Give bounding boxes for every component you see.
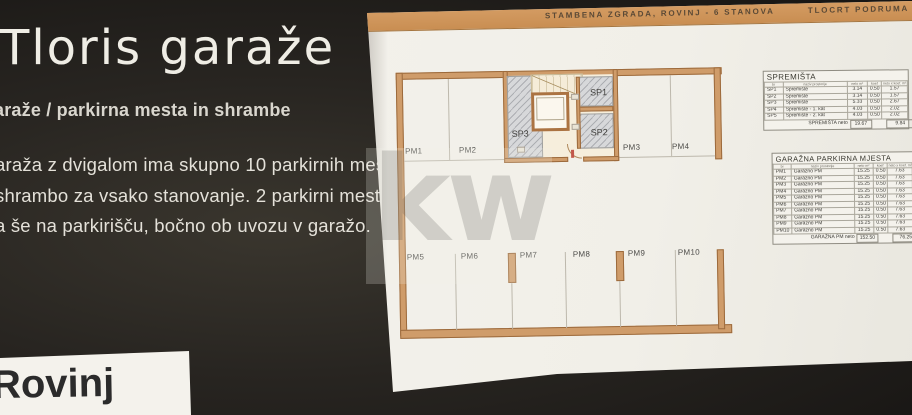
project-title: STAMBENA ZGRADA, ROVINJ - 6 STANOVA	[545, 7, 765, 20]
elevator-car	[536, 97, 564, 120]
divider-pm9-pm10	[675, 250, 677, 326]
location-label: Rovinj	[0, 361, 115, 408]
table-cell: 0.50	[868, 112, 882, 119]
divider-pm8-pm9	[619, 281, 621, 327]
table-cell: 0.50	[874, 227, 888, 234]
wall-sp1-sp2	[577, 106, 613, 112]
wall-right-upper	[714, 67, 723, 159]
label-pm3: PM3	[623, 143, 641, 152]
parking-table: GARAŽNA PARKIRNA MJESTA brnaziv prostori…	[772, 151, 912, 244]
divider-pm6-pm7	[511, 283, 513, 329]
label-pm4: PM4	[672, 142, 690, 151]
photo-of-presentation-board: Tloris garaže araže / parkirna mesta in …	[0, 0, 912, 415]
table-cell: 0.50	[874, 207, 888, 214]
parking-table-title: GARAŽNA PARKIRNA MJESTA	[773, 152, 912, 163]
description-paragraph: araža z dvigalom ima skupno 10 parkirnih…	[0, 150, 395, 242]
parking-table-total: GARAŽNA PM neto 152.50 76.25	[773, 233, 912, 243]
table-cell: 0.50	[874, 214, 888, 221]
total-neto: 152.50	[857, 234, 879, 243]
page-subtitle: araže / parkirna mesta in shrambe	[0, 100, 374, 121]
table-cell: 0.50	[874, 220, 888, 227]
storage-table-grid: brnaziv prostorijeneto m²koefneto x koef…	[764, 80, 908, 120]
kw-watermark-text: kw	[372, 126, 552, 274]
total-label: SPREMIŠTA neto	[764, 119, 850, 129]
table-cell: Spremište - 2. kat	[783, 112, 847, 119]
table-cell: 0.50	[873, 168, 887, 175]
label-pm8: PM8	[573, 250, 591, 259]
description-line-2: shrambo za vsako stanovanje. 2 parkirni …	[0, 181, 395, 212]
kw-watermark: kw	[366, 148, 552, 284]
table-cell: 0.50	[874, 194, 888, 201]
table-cell: 2.02	[882, 112, 908, 119]
wall-right-lower	[717, 249, 725, 329]
storage-table: SPREMIŠTA brnaziv prostorijeneto m²koefn…	[763, 69, 910, 130]
parking-table-grid: brnaziv prostorijeneto m²koefneto x koef…	[773, 162, 912, 234]
table-column-header: neto x koef. m²	[887, 163, 912, 168]
total-sum: 76.25	[892, 233, 912, 242]
topstalls-front-line-right	[619, 155, 715, 158]
description-line-1: araža z dvigalom ima skupno 10 parkirnih…	[0, 150, 395, 181]
table-cell: 0.50	[867, 93, 881, 100]
label-sp1: SP1	[590, 87, 607, 97]
table-cell: 7.63	[888, 226, 912, 233]
door-mark-sp1	[571, 94, 579, 100]
table-cell: 0.50	[874, 201, 888, 208]
core-wall-bottom-right	[583, 156, 619, 162]
table-cell: Garažno PM	[792, 227, 855, 234]
divider-pm7-pm8	[565, 252, 567, 328]
description-line-3: a še na parkirišču, bočno ob uvozu v gar…	[0, 211, 395, 242]
core-entry-door-leaf	[571, 150, 574, 158]
table-cell: 4.03	[848, 112, 868, 119]
drawing-header-bar: STAMBENA ZGRADA, ROVINJ - 6 STANOVA TLOC…	[362, 0, 912, 32]
total-gap	[872, 119, 886, 128]
table-cell: 0.50	[867, 99, 881, 106]
total-label: GARAŽNA PM neto	[773, 234, 856, 244]
label-pm10: PM10	[678, 248, 700, 257]
table-cell: SP5	[765, 113, 784, 120]
table-cell: 0.50	[873, 181, 887, 188]
table-cell: 0.50	[868, 106, 882, 113]
label-pm9: PM9	[628, 249, 646, 258]
table-cell: 15.25	[854, 227, 874, 234]
table-cell: 0.50	[867, 86, 881, 93]
table-column-header: neto x koef. m²	[882, 81, 908, 86]
total-neto: 19.67	[850, 119, 872, 128]
total-gap	[878, 233, 892, 242]
table-cell: PM10	[774, 228, 792, 235]
table-cell: 0.50	[873, 188, 887, 195]
drawing-title: TLOCRT PODRUMA	[808, 4, 912, 15]
page-title: Tloris garaže	[0, 20, 370, 76]
label-sp2: SP2	[591, 127, 608, 137]
door-mark-sp2	[572, 124, 580, 130]
table-cell: 0.50	[873, 175, 887, 182]
pillar-right	[616, 251, 625, 281]
storage-table-total: SPREMIŠTA neto 19.67 9.84	[764, 119, 908, 130]
total-sum: 9.84	[886, 119, 912, 128]
